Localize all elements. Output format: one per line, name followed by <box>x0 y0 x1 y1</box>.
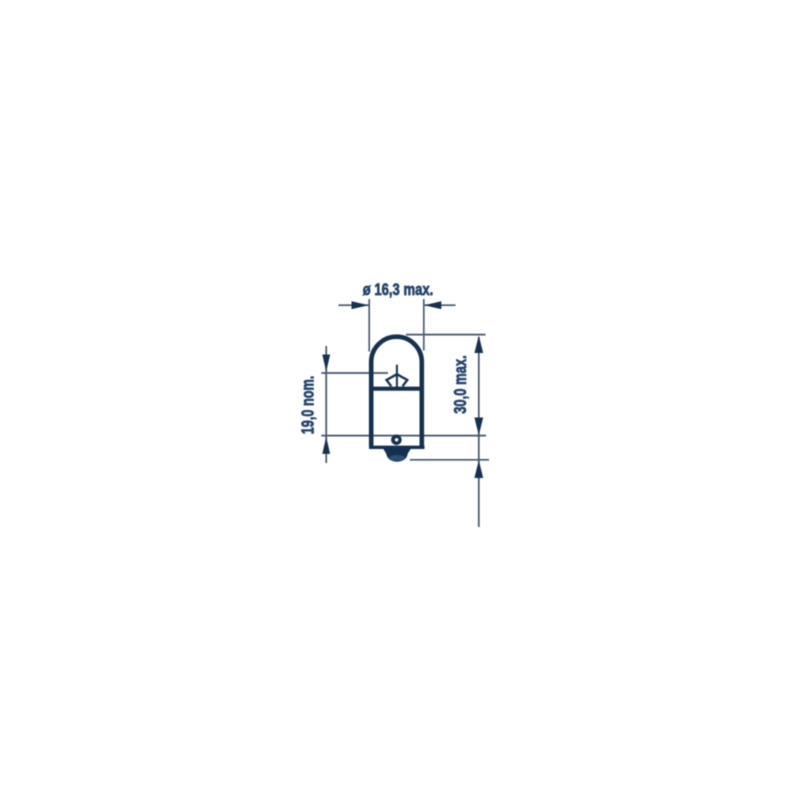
svg-text:19,0 nom.: 19,0 nom. <box>298 376 318 435</box>
svg-text:30,0 max.: 30,0 max. <box>450 355 470 414</box>
svg-text:ø 16,3 max.: ø 16,3 max. <box>363 281 434 299</box>
